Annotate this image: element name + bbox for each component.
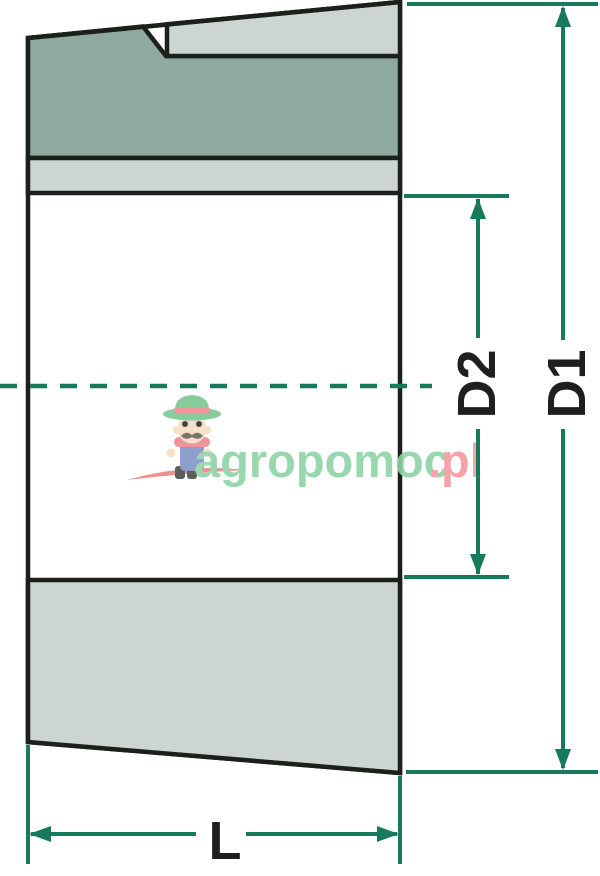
d1-arrow-down-icon (555, 749, 571, 770)
mascot-eye-right (196, 421, 202, 427)
d2-arrow-down-icon (470, 554, 486, 575)
d2-label: D2 (447, 349, 507, 418)
d1-arrow-up-icon (555, 6, 571, 27)
d2-arrow-up-icon (470, 198, 486, 219)
mascot-hat-band (175, 408, 210, 414)
mascot-hand-left (167, 449, 176, 458)
l-arrow-left-icon (29, 826, 51, 842)
watermark-tld-text: .pl (428, 434, 483, 487)
dimension-d2: D2 (404, 196, 509, 577)
upper-light-band (28, 158, 400, 193)
mascot-eye-left (182, 421, 188, 427)
top-flange-section (167, 2, 400, 56)
l-arrow-right-icon (377, 826, 399, 842)
watermark-brand-text: agropomoc (194, 434, 450, 487)
bushing-cross-section-diagram: agropomoc .pl D1 D2 L (0, 0, 600, 876)
l-label: L (209, 811, 242, 871)
d1-label: D1 (537, 349, 597, 418)
technical-drawing-page: agropomoc .pl D1 D2 L (0, 0, 600, 876)
lower-wall-section (28, 580, 400, 773)
